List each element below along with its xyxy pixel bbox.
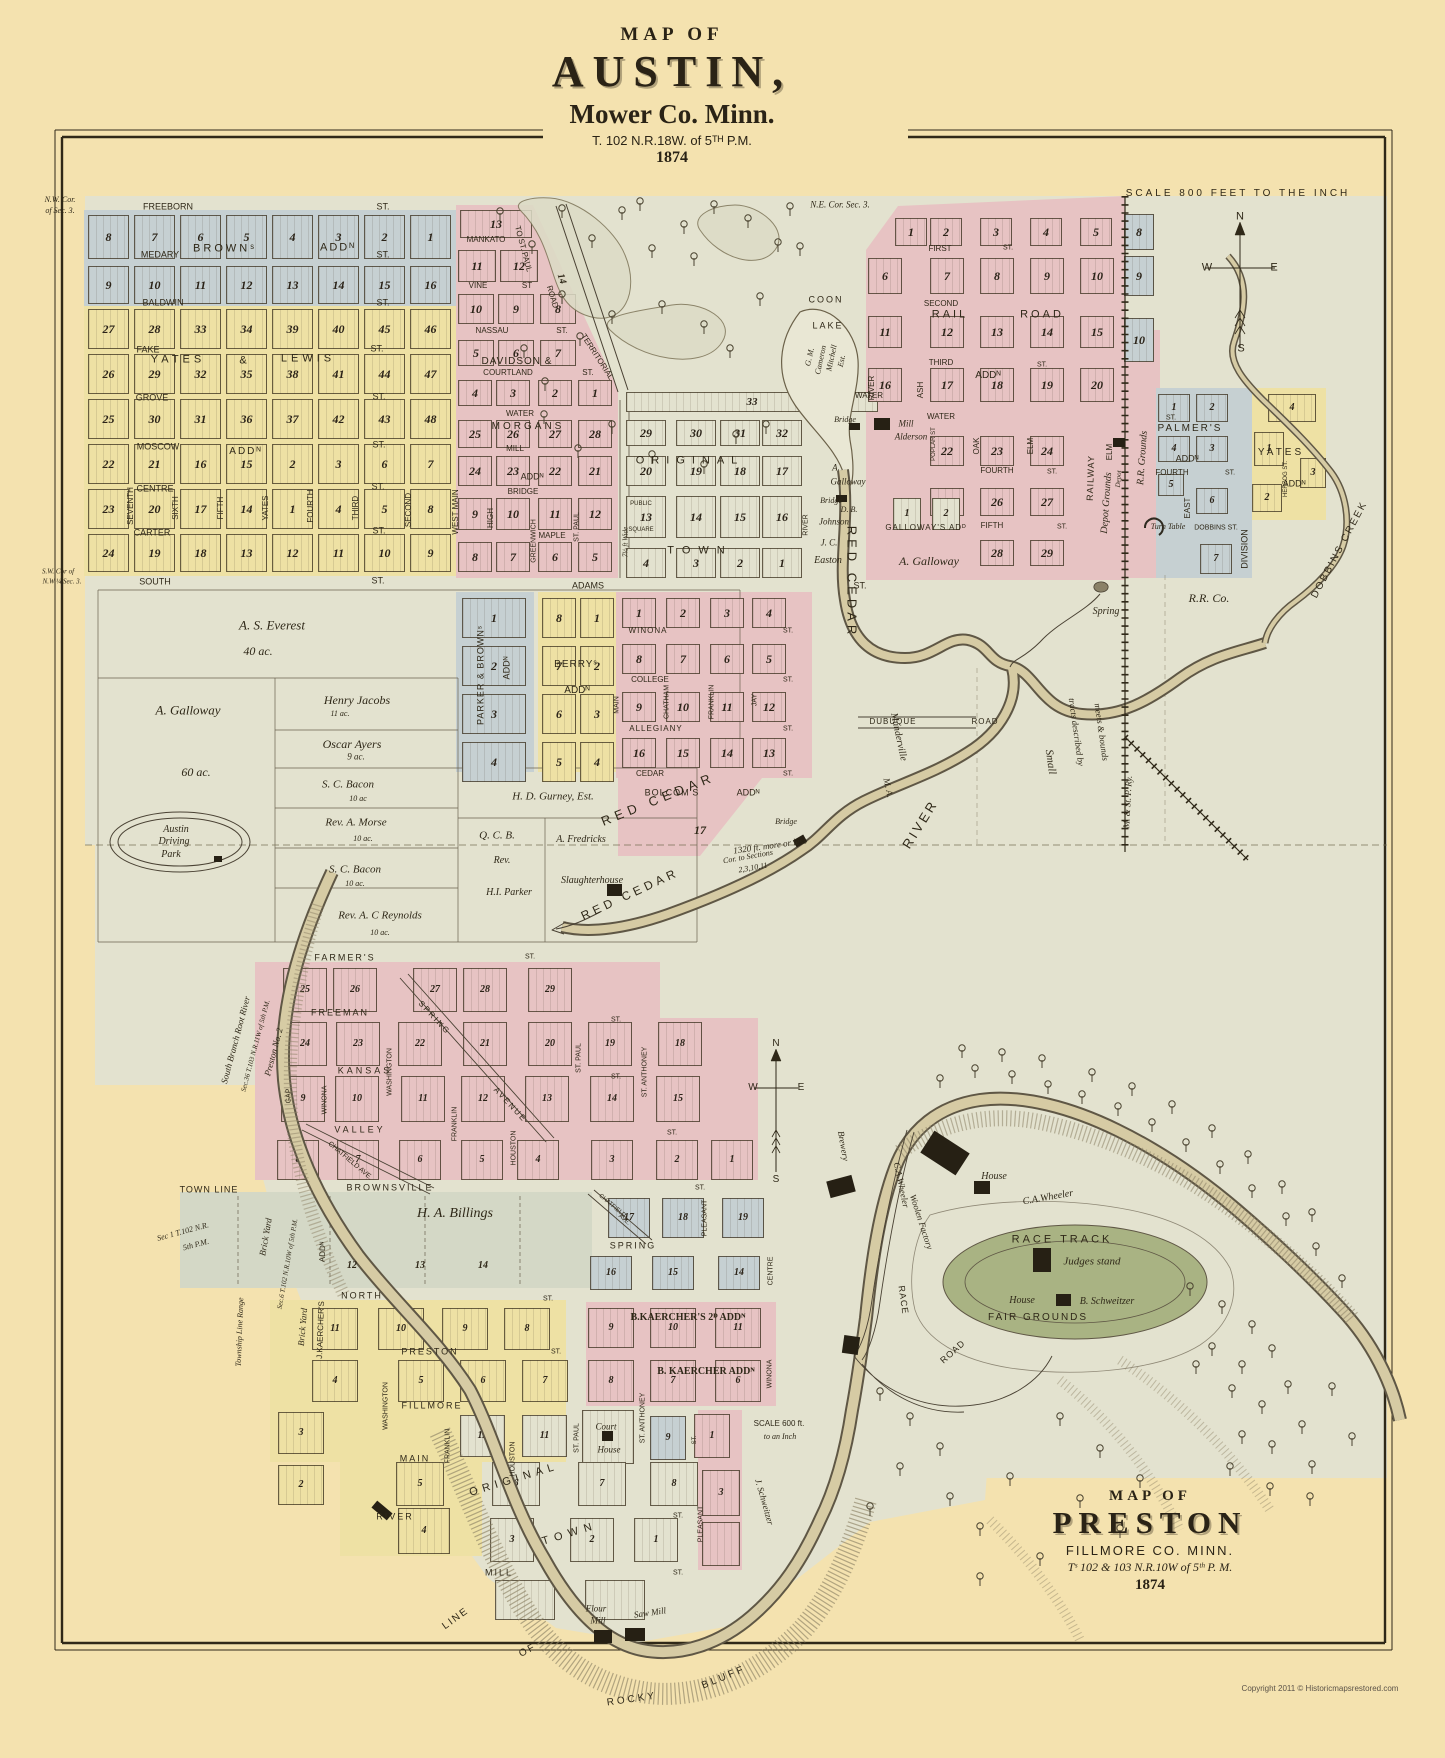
map-label: House [1009,1296,1035,1306]
map-label: MEDARY [141,251,179,260]
map-label: POPLAR ST [931,427,937,461]
map-label: ST. [673,1513,683,1520]
map-label: ST. [1057,524,1067,531]
map-label: ST. PAUL [576,1043,583,1073]
map-label: DIVISION [1241,529,1250,569]
map-label: E [1270,263,1277,274]
map-label: PARKER & BROWNˢ [477,625,486,725]
map-label: Judges stand [1063,1257,1120,1268]
map-label: CHATFIELD AVE. [327,1141,374,1182]
map-label: RIVER [900,797,940,850]
map-label: S [773,1175,780,1185]
map-label: NORTH [341,1292,383,1301]
map-label: ST. [582,369,594,377]
map-label: Rev. A. Morse [325,818,386,829]
map-label: Mill [591,1617,606,1626]
map-label: FIRST [928,245,951,253]
map-label: 9 ac. [347,753,365,762]
map-label: ROCKY [606,1692,657,1709]
map-label: ST. [372,527,385,536]
map-label: Galloway [831,478,866,487]
map-label: Woolen Factory [908,1193,934,1250]
map-label: PLEASANT [698,1506,705,1543]
map-label: ST. [372,441,385,450]
map-label: YATES [262,495,270,520]
map-label: Preston No. 2 [263,1027,284,1077]
map-label: RAIL [932,310,968,321]
map-label: to an Inch [764,1433,796,1441]
map-label: ST. [372,393,385,402]
map-label: JAY [752,694,759,706]
map-label: MAPLE [538,532,565,540]
map-label: Oscar Ayers [323,738,382,750]
map-label: CHATHAM [664,685,671,719]
map-label: DOBBINS ST. [1194,525,1238,532]
map-label: 12 [347,1261,357,1271]
map-label: B.KAERCHER'S 2ᴰ ADDᴺ [630,1313,745,1323]
map-label: Easton [814,556,842,566]
map-label: Township Line Range [235,1297,245,1366]
map-label: ST. [376,251,389,260]
map-label: ST. [611,1074,621,1081]
map-label: Rev. A. C Reynolds [338,911,422,922]
map-label: RACE TRACK [1012,1235,1113,1246]
map-label: ST. [1225,470,1235,477]
map-label: HOUSTON [511,1131,518,1166]
map-label: ADDᴺ [503,657,512,680]
map-label: C.A.Wheeler [892,1162,910,1209]
map-label: Slaughterhouse [561,876,623,886]
map-label: Est. [837,354,847,368]
map-label: House [981,1172,1007,1182]
map-label: ADAMS [572,582,604,591]
map-label: 10 ac. [345,880,365,888]
map-label: Rev. [494,856,511,866]
map-label: CENTRE [768,1257,775,1286]
map-label: ST [522,282,532,290]
map-label: ST. [525,954,535,961]
map-label: ST. [543,1296,553,1303]
map-label: SEVENTH [127,487,135,525]
map-label: Court [595,1423,616,1432]
map-label: BRIDGE [508,488,539,496]
map-label: C.A.Wheeler [1022,1189,1074,1208]
map-label: PUBLIC [630,501,652,507]
map-label: tracts described by [1067,697,1085,766]
map-label: N.E. Cor. Sec. 3. [810,201,870,210]
map-label: SECOND [924,300,958,308]
map-label: WINONA [767,1360,774,1389]
preston-title: PRESTON [980,1505,1320,1541]
map-label: ST. [695,1185,705,1192]
map-label: Henry Jacobs [324,694,390,706]
map-sheet: { "meta":{"copyright":"Copyright 2011 © … [0,0,1445,1758]
map-label: ST. [1037,362,1047,369]
map-label: Bridge [775,818,797,826]
map-label: TOWN [667,546,732,557]
map-label: HIGH [487,508,495,528]
map-label: Small [1043,749,1057,775]
map-label: ST. [371,483,384,492]
map-label: 14 [478,1261,488,1271]
map-label: ST. [667,1130,677,1137]
map-label: ST. [611,1017,621,1024]
map-label: PLEASANT [702,1200,709,1237]
map-label: M. A. [882,777,895,798]
map-label: ADDᴺ [229,447,262,457]
map-label: WINONA [322,1086,329,1115]
map-label: SPRING [417,1000,452,1037]
map-label: ROAD [1020,310,1064,321]
map-label: ST. [692,1436,698,1445]
map-label: MILL [506,445,524,453]
map-label: ORIGINAL [636,456,745,467]
preston-subtitle: FILLMORE CO. MINN. [980,1543,1320,1558]
map-label: BLUFF [700,1665,747,1692]
map-label: PALMER'S [1158,424,1223,434]
map-label: FIFTH [217,497,225,520]
map-label: RIVER [868,376,876,400]
map-label: Park [161,850,180,860]
map-label: DAVIDSON & [482,357,553,367]
map-label: A. S. Everest [239,619,305,632]
map-label: B. KAERCHER ADDᴺ [657,1367,754,1377]
map-label: meets & bounds [1093,703,1110,762]
map-label: LINE [441,1606,471,1632]
map-label: WASHINGTON [383,1382,390,1430]
map-label: Spring [1093,607,1120,617]
map-label: A. Galloway [156,704,221,717]
map-label: TO ST. PAUL [513,225,533,273]
map-label: N.W.¼ Sec. 3. [43,579,82,586]
austin-title: AUSTIN, [447,46,897,97]
map-label: Brick Yard [297,1308,309,1347]
map-label: ROAD [939,1339,967,1366]
map-label: VINE [469,282,488,290]
map-label: SCALE 600 ft. [754,1420,805,1428]
map-label: ST. [556,327,568,335]
map-label: CEDAR [636,770,664,778]
map-label: EAST [1184,498,1192,519]
map-label: S.W. Cor of [42,569,74,576]
map-label: ELM [1106,444,1114,460]
map-label: ST. [673,1570,683,1577]
map-label: ST. [376,299,389,308]
map-label: COON [809,296,844,305]
map-label: AVE. [617,1213,631,1226]
map-label: THIRD [929,359,953,367]
preston-title-prefix: MAP OF [980,1488,1320,1505]
map-label: 13 [415,1261,425,1271]
map-label: ST. ANTHONEY [640,1393,647,1444]
austin-title-block: MAP OF AUSTIN, Mower Co. Minn. T. 102 N.… [447,24,897,167]
austin-title-prefix: MAP OF [447,24,897,46]
map-label: WEST MAIN [452,489,460,534]
map-label: RIVER [803,514,810,535]
map-label: CENTRE [136,485,173,494]
map-label: ADDᴺ [564,686,589,696]
map-label: BERRYˢ [554,660,598,670]
austin-township: T. 102 N.R.18W. of 5ᵀᴴ P.M. [447,133,897,148]
map-label: FRANKLIN [709,685,716,720]
map-label: S. C. Bacon [322,780,374,791]
map-label: TOWN LINE [180,1186,239,1195]
map-label: Mill [899,420,914,429]
map-label: FREEBORN [143,203,193,212]
map-label: BOLCOM'S [645,789,700,798]
map-label: YATES [1258,448,1304,458]
copyright: Copyright 2011 © Historicmapsrestored.co… [1242,1685,1399,1693]
map-label: MILL [485,1569,513,1578]
map-label: ST. PAUL [574,512,581,542]
map-label: ADDᴺ [521,473,544,482]
map-label: J. Schweitzer [753,1478,775,1526]
map-label: N [1236,212,1244,223]
map-label: Flour [586,1605,607,1614]
map-label: GAP [286,1089,293,1104]
map-label: ST. [783,771,793,778]
map-label: SECOND [405,493,413,527]
map-label: MAIN [614,696,621,714]
map-label: House [598,1446,621,1455]
map-label: ST. [1166,415,1176,422]
map-label: ST. [1003,245,1013,252]
map-label: ST. [551,1349,561,1356]
map-label: 17 [694,824,706,836]
map-label: Driving [158,837,189,847]
map-label: 40 ac. [243,645,272,657]
map-label: ADDᴺ [737,789,760,798]
map-label: ASH [917,382,925,398]
map-label: SOUTH [139,578,171,587]
map-label: J.KAERCHER'S [316,1301,326,1359]
map-label: Brick Yard [258,1217,273,1256]
map-label: Depot [1115,470,1123,488]
map-label: ROAD [545,285,559,309]
map-label: FREEMAN [311,1009,369,1018]
austin-year: 1874 [447,149,897,167]
map-label: ADDᴺ [319,1242,328,1263]
map-label: Alderson [895,433,928,442]
map-label: ST. [783,677,793,684]
map-label: RAILWAY [1086,455,1097,501]
map-label: 10 ac [349,795,367,803]
map-label: A. Fredricks [556,835,606,845]
map-label: N.W. Cor. [45,196,76,204]
map-label: ADDᴺ [320,243,356,254]
map-label: CARTER [134,529,171,538]
map-label: Depot Grounds [1100,472,1114,534]
map-label: RED CEDAR [599,770,717,828]
map-label: 14 [555,273,567,285]
map-label: 10 ac. [370,929,390,937]
map-label: COLLEGE [631,676,669,684]
map-label: PRESTON [401,1348,458,1357]
map-label: 2,3,10,11 [738,862,768,875]
map-label: KANSAS [338,1067,393,1076]
map-label: MANKATO [467,236,506,244]
map-label: MOSCOW [137,443,180,452]
map-label: Sec.6 T.102 N.R.10W of 5th P.M. [277,1218,300,1310]
map-label: W [1202,263,1212,274]
map-label: Q. C. B. [479,831,515,842]
map-label: H.I. Parker [486,888,532,898]
map-label: FAIR GROUNDS [988,1313,1088,1323]
map-label: ALLEGIANY [629,725,682,733]
map-label: ADDᴺ [1176,455,1199,464]
map-label: ST. PAUL [574,1423,581,1453]
map-label: SQUARE [628,527,653,533]
preston-township: Tˢ 102 & 103 N.R.10W of 5ᵗʰ P. M. [980,1560,1320,1575]
map-label: 11 ac. [331,710,350,718]
map-label: FOURTH [307,489,315,522]
map-label: WASHINGTON [387,1048,394,1096]
map-label: of Sec. 3. [45,207,74,215]
map-label: LAKE [812,322,843,331]
map-label: BALDWIN [142,299,183,308]
map-label: GALLOWAY'S ADᴰ [885,524,966,532]
map-label: DOBBINS CREEK [1310,500,1370,600]
map-label: H. D. Gurney, Est. [512,792,594,803]
map-label: ROAD [971,718,998,726]
map-label: A. Galloway [899,555,959,567]
map-label: THIRD [352,496,360,520]
map-label: ST. [371,577,384,586]
map-label: RED CEDAR [846,526,859,639]
map-label: SPRING [610,1242,657,1251]
map-label: FIFTH [981,522,1004,530]
map-label: FOURTH [980,467,1013,475]
map-label: BROWNˢ [193,244,257,255]
map-label: 60 ac. [181,766,210,778]
map-label: FARMER'S [314,954,375,963]
map-label: RIVER [376,1513,414,1522]
map-label: ST. [376,203,389,212]
map-label: A. [832,464,840,473]
map-label: 5th P.M. [182,1238,210,1253]
map-label: WATER [927,413,955,421]
map-label: WINONA [629,627,668,635]
map-label: Turn Table [1151,523,1186,531]
map-label: NASSAU [476,327,509,335]
map-label: ST. ANTHONEY [642,1047,649,1098]
map-label: ELM [1027,438,1035,454]
austin-subtitle: Mower Co. Minn. [447,99,897,130]
map-label: COURTLAND [483,369,533,377]
map-label: HOUSTON [510,1442,517,1477]
map-label: S [1237,344,1244,355]
map-label: ADDᴺ [975,371,1000,381]
map-label: SCALE 800 FEET TO THE INCH [1126,189,1351,199]
preston-year: 1874 [980,1577,1320,1594]
map-label: Brewery [836,1130,850,1161]
map-label: WATER [506,410,534,418]
map-label: ST. [783,628,793,635]
map-label: FRANKLIN [452,1107,459,1142]
map-label: D. B. [841,506,858,514]
stage: 8765432191011121314151627283334394045462… [0,0,1445,1758]
map-label: MAIN [400,1455,431,1464]
map-label: 10 ac. [353,835,373,843]
map-label: BROWNSVILLE [346,1184,433,1193]
map-label: LEWIS [281,354,335,365]
map-label: FOURTH [1155,469,1188,477]
map-label: S. C. Bacon [329,865,381,876]
map-label: ST. [783,726,793,733]
map-label: FRANKLIN [445,1429,452,1464]
map-label: GROVE [136,394,169,403]
map-label: E [798,1083,805,1093]
map-label: OF [518,1642,538,1659]
map-label: B. Schweitzer [1080,1297,1134,1307]
map-label: M. & St. P. Ry. [1122,775,1134,828]
map-label: AVENUE [492,1086,528,1124]
preston-title-block: MAP OF PRESTON FILLMORE CO. MINN. Tˢ 102… [980,1488,1320,1594]
map-label: RACE [897,1285,910,1315]
map-label: VALLEY [334,1126,385,1135]
map-label: ST. [1047,469,1057,476]
map-label: YATES [151,355,205,366]
map-label: FILLMORE [401,1402,462,1411]
map-label: R.R. Co. [1189,592,1230,604]
map-label: R.R. Grounds [1136,431,1150,486]
map-label: TOWN [541,1520,599,1547]
map-label: Bridge [820,497,842,505]
map-label: J. C. [821,539,838,548]
map-label: Bridge [834,416,856,424]
map-label: ST. [370,345,383,354]
map-label: W [748,1083,757,1093]
map-label: GREENWICH [531,519,538,563]
map-label: OAK [973,438,981,455]
map-label: H. A. Billings [417,1207,493,1221]
map-label: SIXTH [172,496,180,520]
map-label: HERZOG ST. [1283,461,1289,497]
map-label: MORGANS [492,422,565,432]
map-label: & [239,356,246,367]
map-label: Austin [163,825,189,835]
map-label: N [772,1039,779,1049]
map-label: Saw Mill [633,1606,666,1619]
